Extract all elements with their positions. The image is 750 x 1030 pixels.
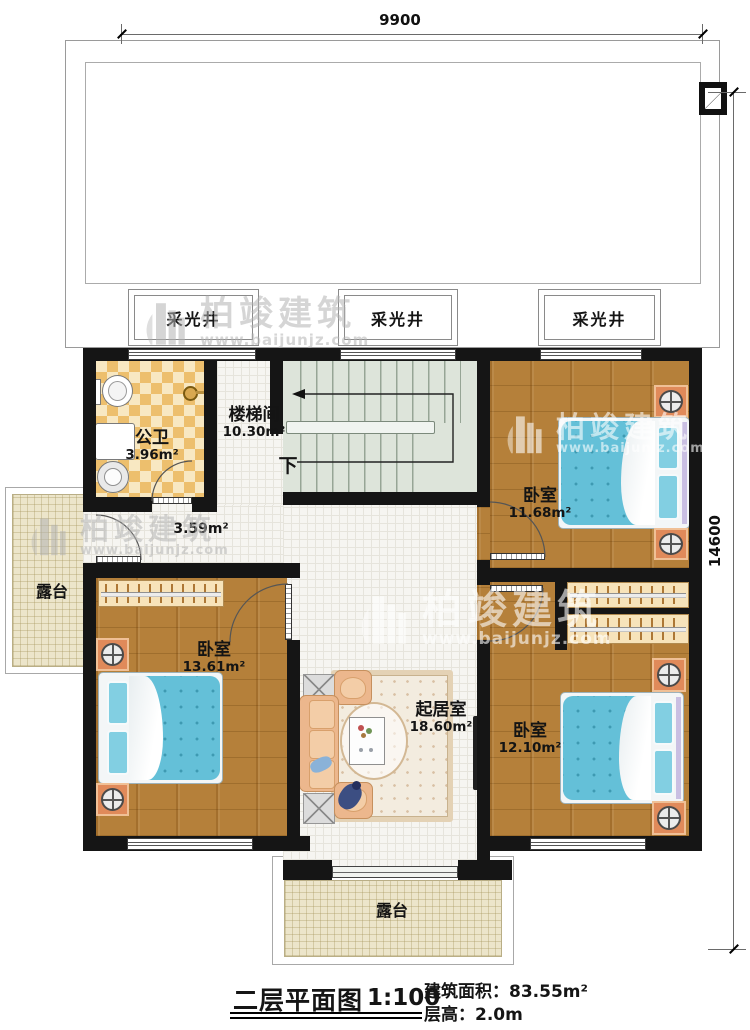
armchair-top: [334, 670, 372, 705]
wall-stair-bottom: [283, 492, 477, 505]
stairwell-area: 10.30m²: [223, 424, 286, 440]
nightstand: [96, 783, 129, 816]
wall-bathroom-right: [204, 361, 217, 512]
building-area-label: 建筑面积：: [424, 982, 509, 1002]
wardrobe-b: [567, 614, 689, 644]
floor-height-label: 层高：: [424, 1005, 475, 1025]
title-underline-1: [230, 1012, 422, 1014]
terrace-left-name: 露台: [36, 578, 68, 602]
floor-height-value: 2.0m: [475, 1005, 523, 1025]
end-table: [303, 793, 335, 824]
label-bedroom-left: 卧室 13.61m²: [183, 641, 246, 676]
wall-left-upper: [83, 348, 96, 507]
round-sink: [97, 461, 129, 493]
label-living: 起居室 18.60m²: [410, 701, 473, 736]
wall-hall-bedroom: [83, 563, 300, 578]
building-area-value: 83.55m²: [509, 982, 588, 1002]
bed-bedroom-left: [98, 672, 223, 784]
lamp-icon: [659, 533, 683, 555]
bedroom-top-right-name: 卧室: [509, 487, 572, 505]
stair-down-text: 下: [278, 451, 297, 478]
label-stairwell: 楼梯间 10.30m²: [223, 406, 286, 441]
lightwell-1: 采光井: [128, 289, 259, 346]
bed-bedroom-top-right: [558, 417, 690, 529]
figure-person-head: [352, 781, 361, 790]
lightwell-3-label: 采光井: [539, 290, 660, 345]
window-bedroom-bottom-right: [530, 838, 646, 850]
bed-bedroom-bottom-right: [560, 692, 684, 804]
label-bathroom: 公卫 3.96m²: [125, 429, 178, 464]
wall-living-right-lower: [477, 640, 490, 868]
wall-living-bottom-right: [458, 860, 512, 880]
lightwell-2: 采光井: [338, 289, 458, 346]
toilet-bowl: [102, 375, 133, 407]
wall-left-lower: [83, 563, 96, 851]
label-terrace-left: 露台: [36, 578, 68, 602]
bedroom-top-right-area: 11.68m²: [509, 505, 572, 521]
bedroom-left-name: 卧室: [183, 641, 246, 659]
door-arc-terrace-left: [94, 510, 146, 564]
living-area: 18.60m²: [410, 719, 473, 735]
wall-right: [689, 348, 702, 851]
lamp-icon: [659, 390, 683, 413]
building-area-row: 建筑面积：83.55m²: [424, 977, 588, 1002]
wall-between-right-bedrooms: [477, 568, 689, 582]
sofa-three-seat: [299, 695, 339, 792]
lightwell-1-label: 采光井: [129, 290, 258, 345]
wall-bedroom-left-right: [287, 640, 300, 851]
door-arc-bedroom-bottom-right: [488, 586, 546, 644]
floor-height-row: 层高：2.0m: [424, 1000, 523, 1025]
roof-window-symbol: [699, 82, 727, 115]
nightstand: [654, 385, 688, 418]
wardrobe-a: [567, 582, 689, 608]
lightwell-3: 采光井: [538, 289, 661, 346]
nightstand: [652, 801, 686, 835]
bathroom-area: 3.96m²: [125, 447, 178, 463]
lamp-icon: [657, 663, 681, 687]
window-bedroom-left: [127, 838, 253, 850]
roof-inner-outline: [85, 62, 701, 284]
dim-ext-right-bottom: [708, 949, 746, 950]
label-stair-down: 下: [278, 451, 297, 478]
door-arc-bathroom: [150, 458, 196, 505]
sliding-door-terrace: [332, 866, 458, 878]
stair-direction-line: [283, 361, 477, 492]
bedroom-bottom-right-name: 卧室: [499, 722, 562, 740]
window-stair: [340, 349, 456, 360]
wall-living-bottom-left: [283, 860, 332, 880]
bedroom-bottom-right-area: 12.10m²: [499, 740, 562, 756]
wall-living-right-mid: [477, 560, 490, 585]
wall-wardrobe-left: [555, 568, 567, 650]
door-arc-bedroom-left: [228, 582, 292, 646]
nightstand: [654, 528, 688, 560]
window-bedroom-top-right: [540, 349, 642, 360]
lamp-icon: [657, 806, 681, 830]
nightstand: [96, 638, 129, 671]
bedroom-left-area: 13.61m²: [183, 659, 246, 675]
dim-ext-right-top: [708, 92, 746, 93]
floorplan-canvas: 采光井 采光井 采光井: [0, 0, 750, 1030]
title-underline-2: [230, 1017, 422, 1019]
lightwell-2-label: 采光井: [339, 290, 457, 345]
window-bathroom: [128, 349, 256, 360]
wardrobe-bedroom-left: [98, 580, 224, 607]
stairwell-name: 楼梯间: [223, 406, 286, 424]
lamp-icon: [101, 643, 124, 666]
label-hallway-area: 3.59m²: [173, 521, 228, 537]
coffee-table: [349, 717, 385, 765]
dimension-line-right: [733, 92, 734, 950]
lamp-icon: [101, 788, 124, 811]
dimension-line-top: [120, 34, 704, 35]
wall-living-right-upper: [477, 348, 490, 507]
dimension-top-value: 9900: [379, 11, 421, 29]
living-name: 起居室: [410, 701, 473, 719]
bathroom-name: 公卫: [125, 429, 178, 447]
label-terrace-bottom: 露台: [376, 897, 408, 921]
wall-wardrobe-divider: [567, 608, 689, 614]
label-bedroom-top-right: 卧室 11.68m²: [509, 487, 572, 522]
terrace-bottom-name: 露台: [376, 897, 408, 921]
dimension-right-value: 14600: [706, 515, 724, 567]
label-bedroom-bottom-right: 卧室 12.10m²: [499, 722, 562, 757]
nightstand: [652, 658, 686, 692]
